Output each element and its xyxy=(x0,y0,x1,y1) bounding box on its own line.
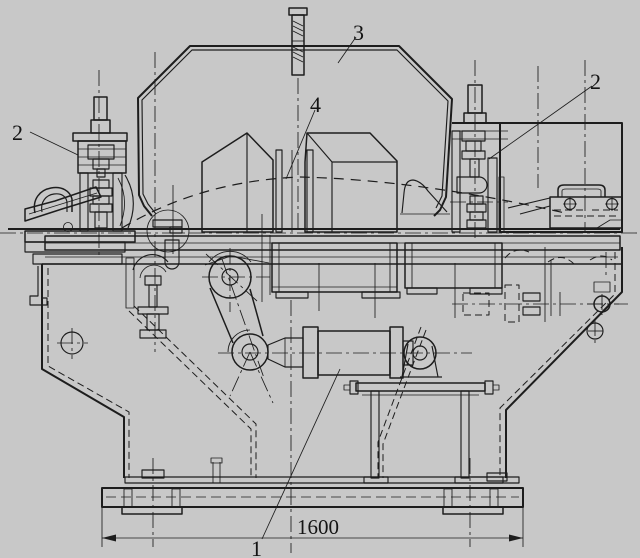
callout-3-label: 3 xyxy=(353,20,364,45)
engineering-drawing-canvas: 1600 2 2 3 4 1 xyxy=(0,0,640,558)
callout-4-label: 4 xyxy=(310,92,321,117)
drawing-background xyxy=(0,0,640,558)
dimension-text: 1600 xyxy=(297,515,339,539)
callout-2-right-label: 2 xyxy=(590,69,601,94)
callout-1-label: 1 xyxy=(251,536,262,558)
machine-elevation-drawing: 1600 2 2 3 4 1 xyxy=(0,0,640,558)
callout-2-left-label: 2 xyxy=(12,120,23,145)
